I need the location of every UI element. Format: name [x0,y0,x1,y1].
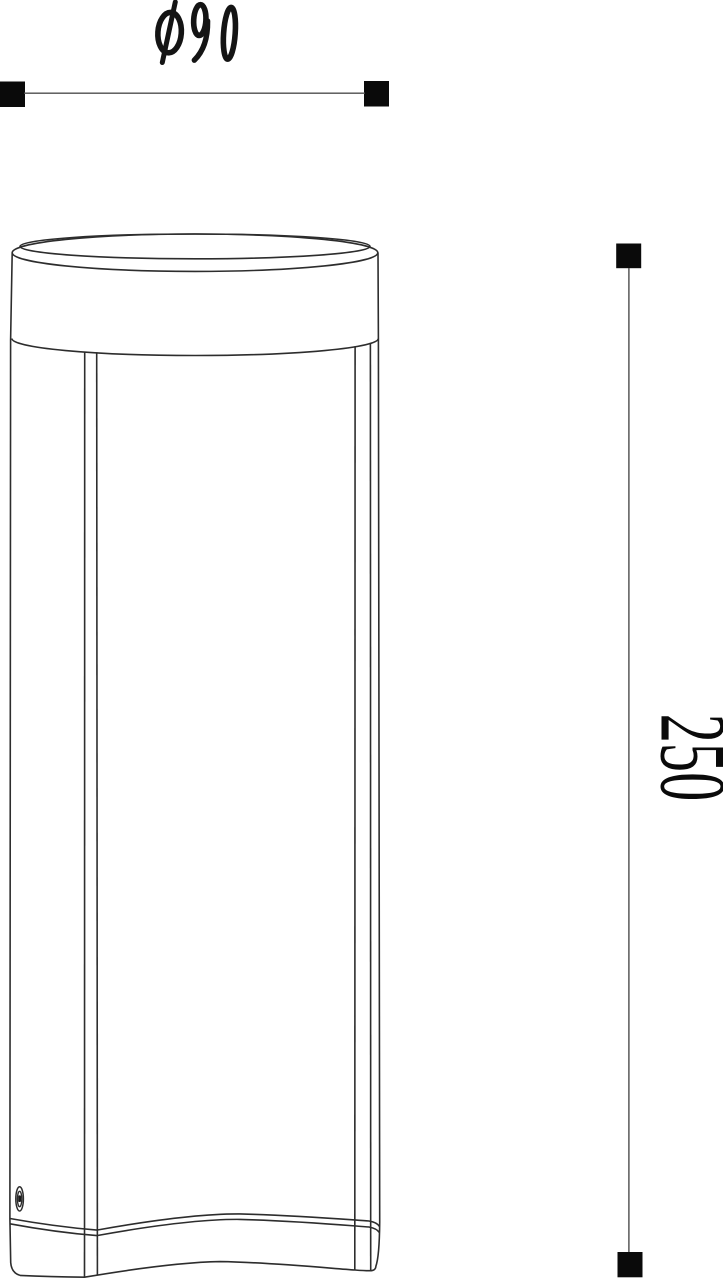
svg-text:250: 250 [641,714,723,801]
